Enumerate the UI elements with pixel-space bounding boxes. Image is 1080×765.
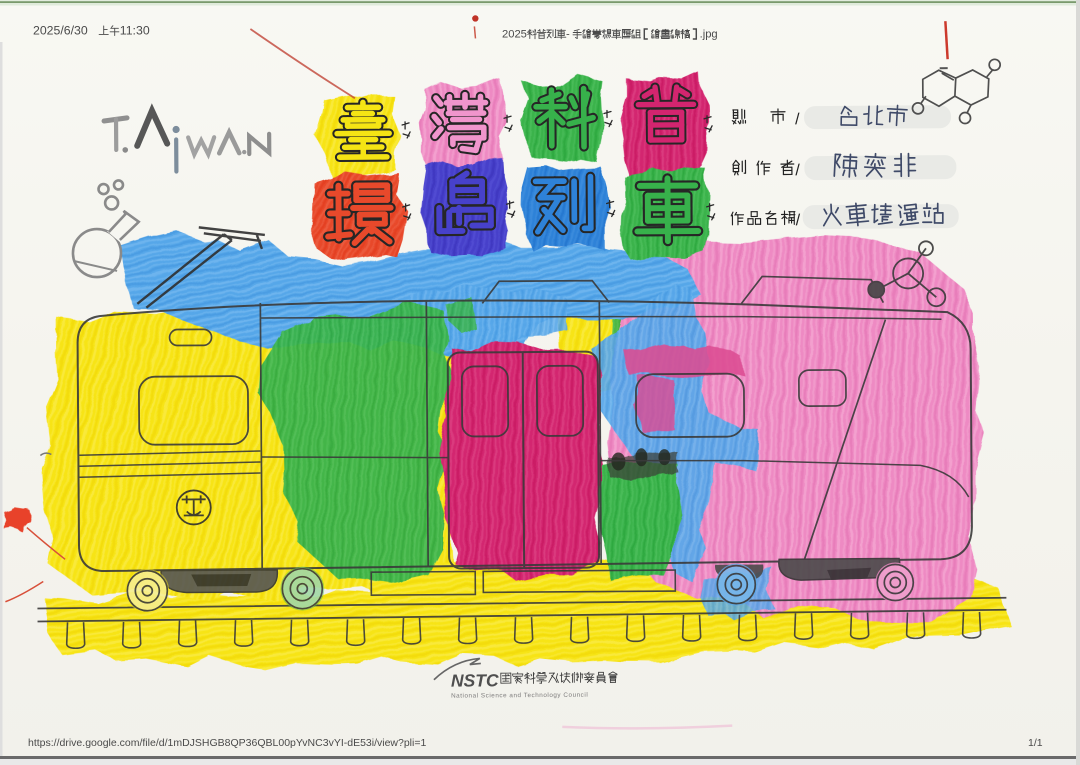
svg-text:/: / xyxy=(795,162,800,179)
svg-text:/: / xyxy=(796,212,801,229)
svg-text:National Science and Technolog: National Science and Technology Council xyxy=(451,692,588,700)
svg-text:/: / xyxy=(795,111,800,128)
svg-text:11:30: 11:30 xyxy=(120,24,150,38)
svg-text:2025: 2025 xyxy=(502,29,527,41)
svg-text:https://drive.google.com/file/: https://drive.google.com/file/d/1mDJSHGB… xyxy=(28,737,426,749)
svg-text:NSTC: NSTC xyxy=(451,670,499,690)
svg-text:1/1: 1/1 xyxy=(1028,737,1043,749)
svg-text:-: - xyxy=(566,29,570,41)
svg-text:.jpg: .jpg xyxy=(700,29,718,41)
svg-text:2025/6/30: 2025/6/30 xyxy=(33,24,88,38)
